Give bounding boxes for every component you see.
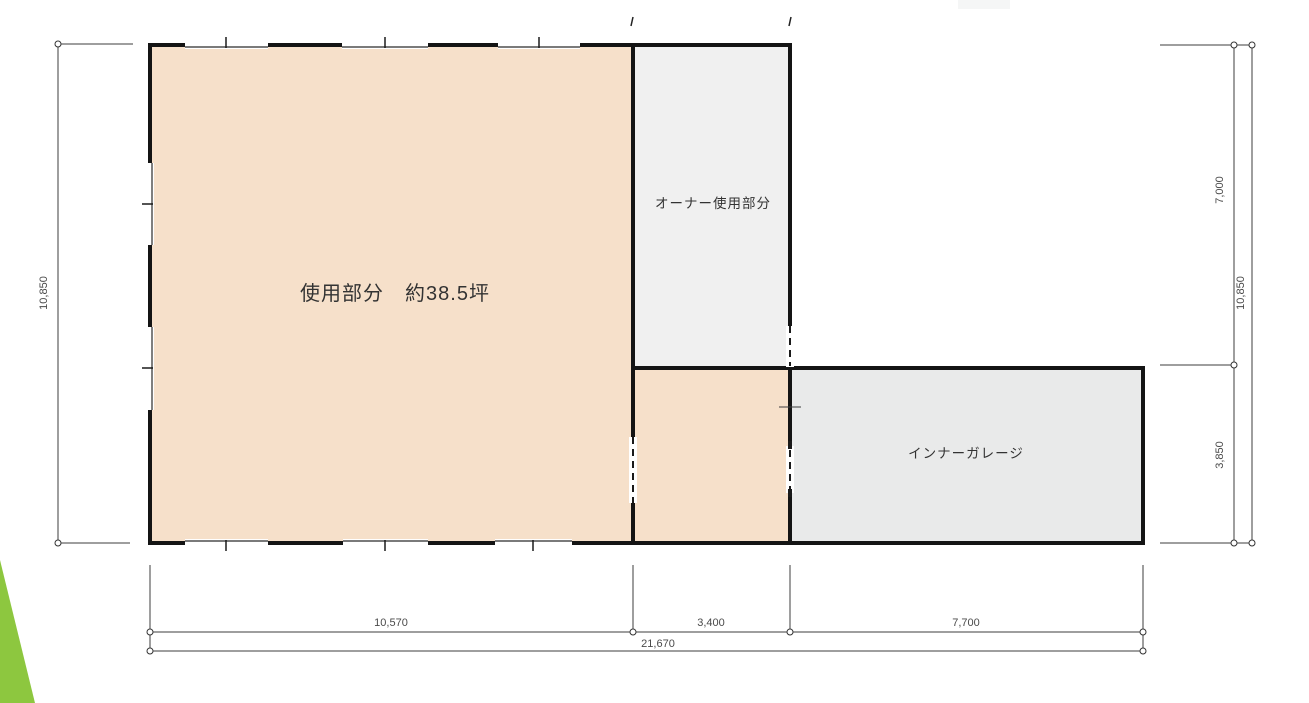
room-label-owner-section: オーナー使用部分 xyxy=(655,195,771,211)
dim-label-right-total: 10,850 xyxy=(1235,276,1247,310)
dim-dot xyxy=(1140,648,1146,654)
dim-dot xyxy=(1231,42,1237,48)
dim-dot xyxy=(787,629,793,635)
top-tick-2 xyxy=(789,17,791,26)
top-right-fragment xyxy=(958,0,1010,9)
dim-dot xyxy=(1231,362,1237,368)
dim-dot xyxy=(1140,629,1146,635)
dim-label-bottom-seg3: 7,700 xyxy=(952,617,980,629)
dim-dot xyxy=(1249,540,1255,546)
top-tick-1 xyxy=(631,17,633,26)
dim-dot xyxy=(147,648,153,654)
dim-dot xyxy=(1231,540,1237,546)
dim-label-right-upper: 7,000 xyxy=(1214,176,1226,204)
room-label-main-usage: 使用部分 約38.5坪 xyxy=(300,282,490,305)
dim-label-bottom-total: 21,670 xyxy=(641,638,675,650)
dim-label-bottom-seg1: 10,570 xyxy=(374,617,408,629)
dim-dot xyxy=(1249,42,1255,48)
dim-dot xyxy=(147,629,153,635)
floor-plan-drawing: 使用部分 約38.5坪 オーナー使用部分 インナーガレージ 10,850 7,0… xyxy=(0,0,1309,703)
green-corner-decoration xyxy=(0,560,35,703)
room-fills xyxy=(150,45,1143,543)
dim-label-bottom-seg2: 3,400 xyxy=(697,617,725,629)
dim-label-right-lower: 3,850 xyxy=(1214,441,1226,469)
room-label-inner-garage: インナーガレージ xyxy=(908,446,1024,461)
door-main-annex xyxy=(629,437,637,503)
top-tick-marks xyxy=(631,17,791,26)
dim-label-left-total: 10,850 xyxy=(38,276,50,310)
room-main-annex xyxy=(633,368,790,543)
dim-dot xyxy=(55,540,61,546)
dim-dot xyxy=(630,629,636,635)
floor-plan-canvas: 使用部分 約38.5坪 オーナー使用部分 インナーガレージ 10,850 7,0… xyxy=(0,0,1309,703)
dim-dot xyxy=(55,41,61,47)
